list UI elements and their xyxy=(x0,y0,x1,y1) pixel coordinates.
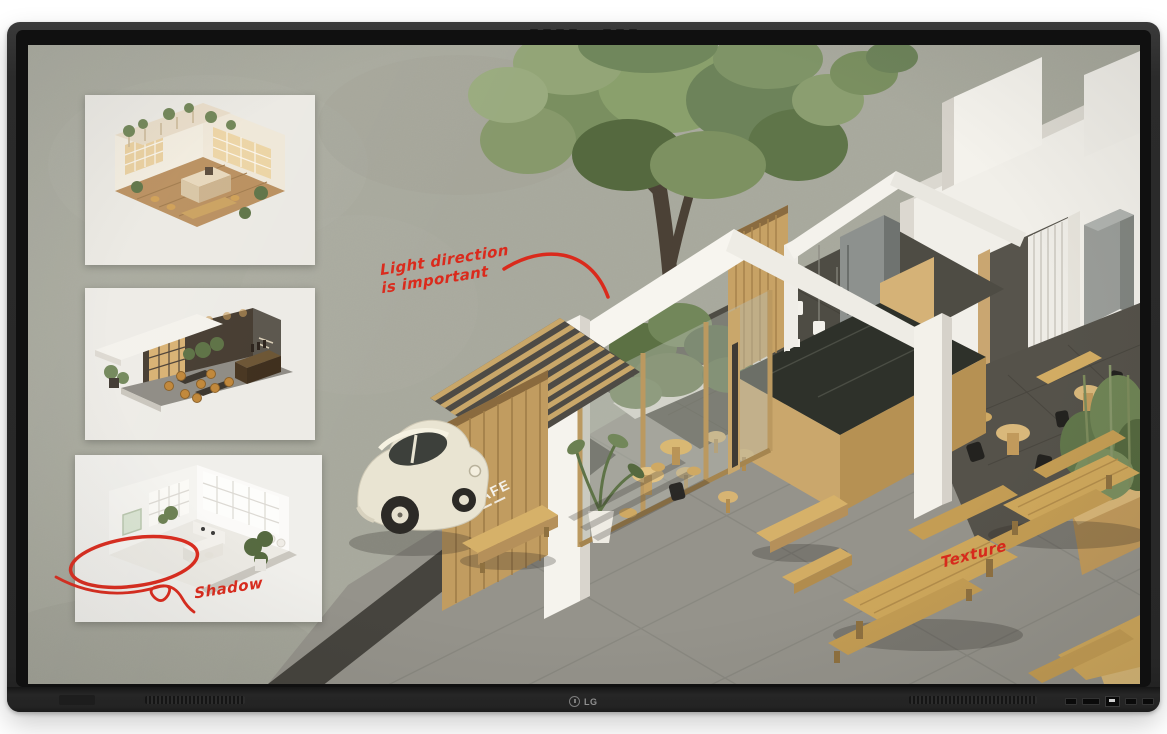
hdmi-port-icon xyxy=(1082,698,1100,705)
lg-interactive-display: CAFE xyxy=(7,22,1160,712)
usb-port-icon xyxy=(1105,696,1120,707)
photo-backdrop: CAFE xyxy=(0,0,1167,734)
lg-logo: LG xyxy=(569,696,598,707)
port-slot-icon xyxy=(1065,698,1077,705)
ir-sensor-window xyxy=(59,695,95,705)
inset-dark-lounge-render xyxy=(85,288,315,440)
speaker-grille-left xyxy=(145,696,245,704)
port-slot-icon xyxy=(1125,698,1137,705)
bottom-bezel: LG xyxy=(7,687,1160,712)
touch-screen[interactable]: CAFE xyxy=(28,45,1140,684)
speaker-grille-right xyxy=(909,696,1037,704)
lg-logo-icon xyxy=(569,696,580,707)
inset-photo-warm-cafe xyxy=(85,95,315,265)
lg-logo-text: LG xyxy=(584,697,598,707)
io-port-cluster xyxy=(1065,696,1154,707)
port-slot-icon xyxy=(1142,698,1154,705)
inset-photo-dark-lounge xyxy=(85,288,315,440)
inset-warm-cafe-render xyxy=(85,95,315,265)
